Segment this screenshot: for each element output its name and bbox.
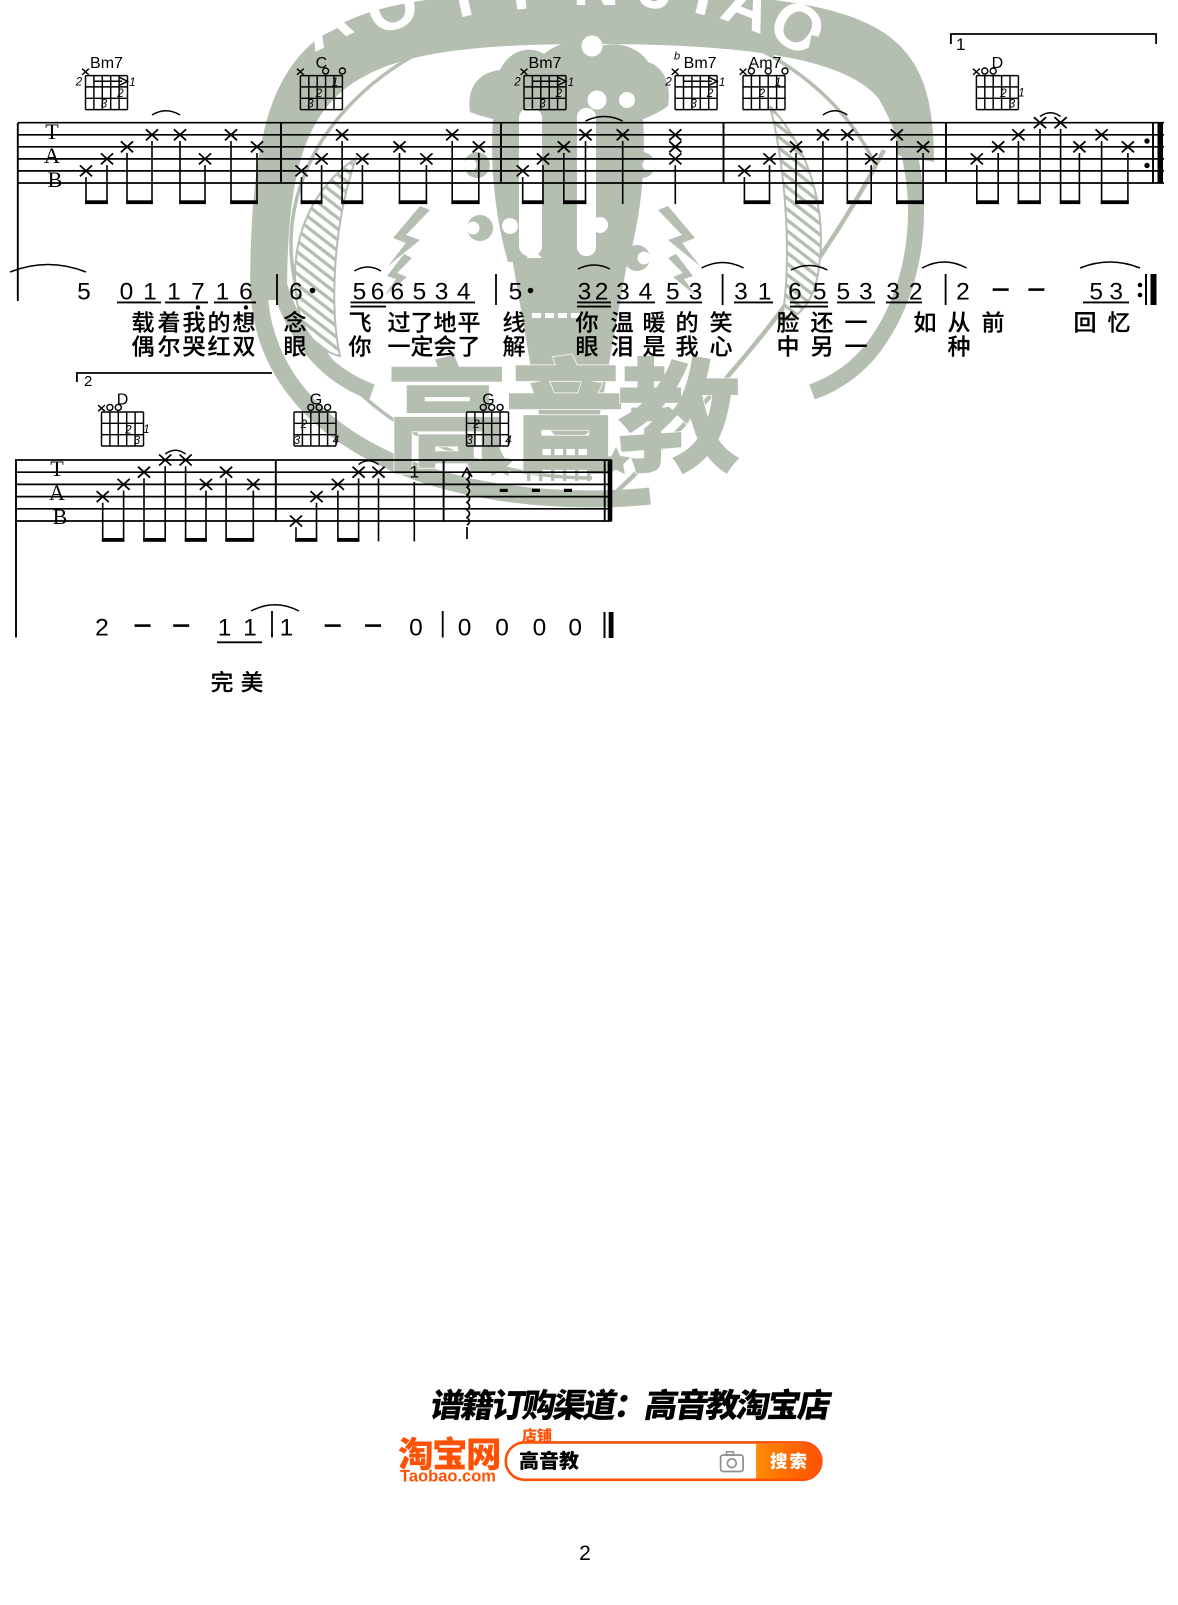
svg-text:B: B — [53, 504, 68, 529]
svg-text:3: 3 — [466, 435, 473, 447]
svg-text:2: 2 — [758, 88, 766, 100]
svg-text:3: 3 — [690, 99, 697, 111]
svg-text:2: 2 — [579, 1542, 591, 1565]
svg-text:0: 0 — [409, 615, 423, 642]
svg-text:5: 5 — [509, 279, 523, 306]
svg-text:1: 1 — [129, 77, 135, 89]
svg-text:T: T — [50, 456, 64, 481]
svg-text:2: 2 — [472, 419, 480, 431]
svg-text:0: 0 — [458, 615, 472, 642]
svg-text:1: 1 — [719, 77, 725, 89]
svg-text:1: 1 — [218, 615, 232, 642]
svg-text:b: b — [674, 51, 680, 63]
svg-text:0: 0 — [533, 615, 547, 642]
svg-text:2: 2 — [95, 615, 109, 642]
svg-text:B: B — [48, 167, 63, 192]
svg-text:D: D — [117, 391, 129, 408]
svg-text:2: 2 — [664, 77, 672, 89]
svg-text:1: 1 — [956, 35, 965, 54]
svg-text:A: A — [44, 143, 60, 168]
svg-text:1: 1 — [1018, 88, 1024, 100]
svg-text:2: 2 — [999, 88, 1007, 100]
svg-text:1: 1 — [410, 463, 419, 482]
svg-text:2: 2 — [300, 419, 308, 431]
svg-text:N: N — [573, 0, 620, 19]
svg-text:5: 5 — [77, 279, 91, 306]
svg-text:2: 2 — [116, 88, 124, 100]
svg-text:2: 2 — [956, 279, 970, 306]
svg-text:1: 1 — [280, 615, 294, 642]
svg-text:Bm7: Bm7 — [529, 55, 562, 72]
svg-text:1: 1 — [568, 77, 574, 89]
svg-text:0: 0 — [495, 615, 509, 642]
svg-text:3: 3 — [307, 99, 314, 111]
svg-text:2: 2 — [84, 373, 92, 390]
svg-text:3: 3 — [1009, 99, 1016, 111]
svg-text:3: 3 — [539, 99, 546, 111]
svg-text:2: 2 — [124, 425, 132, 437]
svg-text:0: 0 — [568, 615, 582, 642]
svg-text:2: 2 — [513, 77, 521, 89]
svg-text:Taobao.com: Taobao.com — [400, 1468, 496, 1486]
svg-text:4: 4 — [333, 435, 339, 447]
svg-text:C: C — [316, 55, 328, 72]
svg-text:6: 6 — [289, 279, 303, 306]
svg-text:3: 3 — [134, 435, 141, 447]
svg-text:1: 1 — [775, 77, 781, 89]
svg-text:4: 4 — [505, 435, 511, 447]
svg-text:A: A — [49, 480, 65, 505]
svg-text:1: 1 — [332, 77, 338, 89]
svg-text:1: 1 — [143, 424, 149, 436]
svg-text:D: D — [992, 55, 1004, 72]
svg-text:Bm7: Bm7 — [90, 55, 123, 72]
svg-text:T: T — [45, 119, 59, 144]
svg-text:1: 1 — [243, 615, 257, 642]
svg-text:2: 2 — [75, 77, 83, 89]
svg-text:2: 2 — [706, 88, 714, 100]
svg-text:3: 3 — [101, 99, 108, 111]
svg-text:2: 2 — [555, 88, 563, 100]
svg-text:3: 3 — [294, 435, 301, 447]
svg-text:Bm7: Bm7 — [684, 55, 717, 72]
svg-text:2: 2 — [315, 88, 323, 100]
